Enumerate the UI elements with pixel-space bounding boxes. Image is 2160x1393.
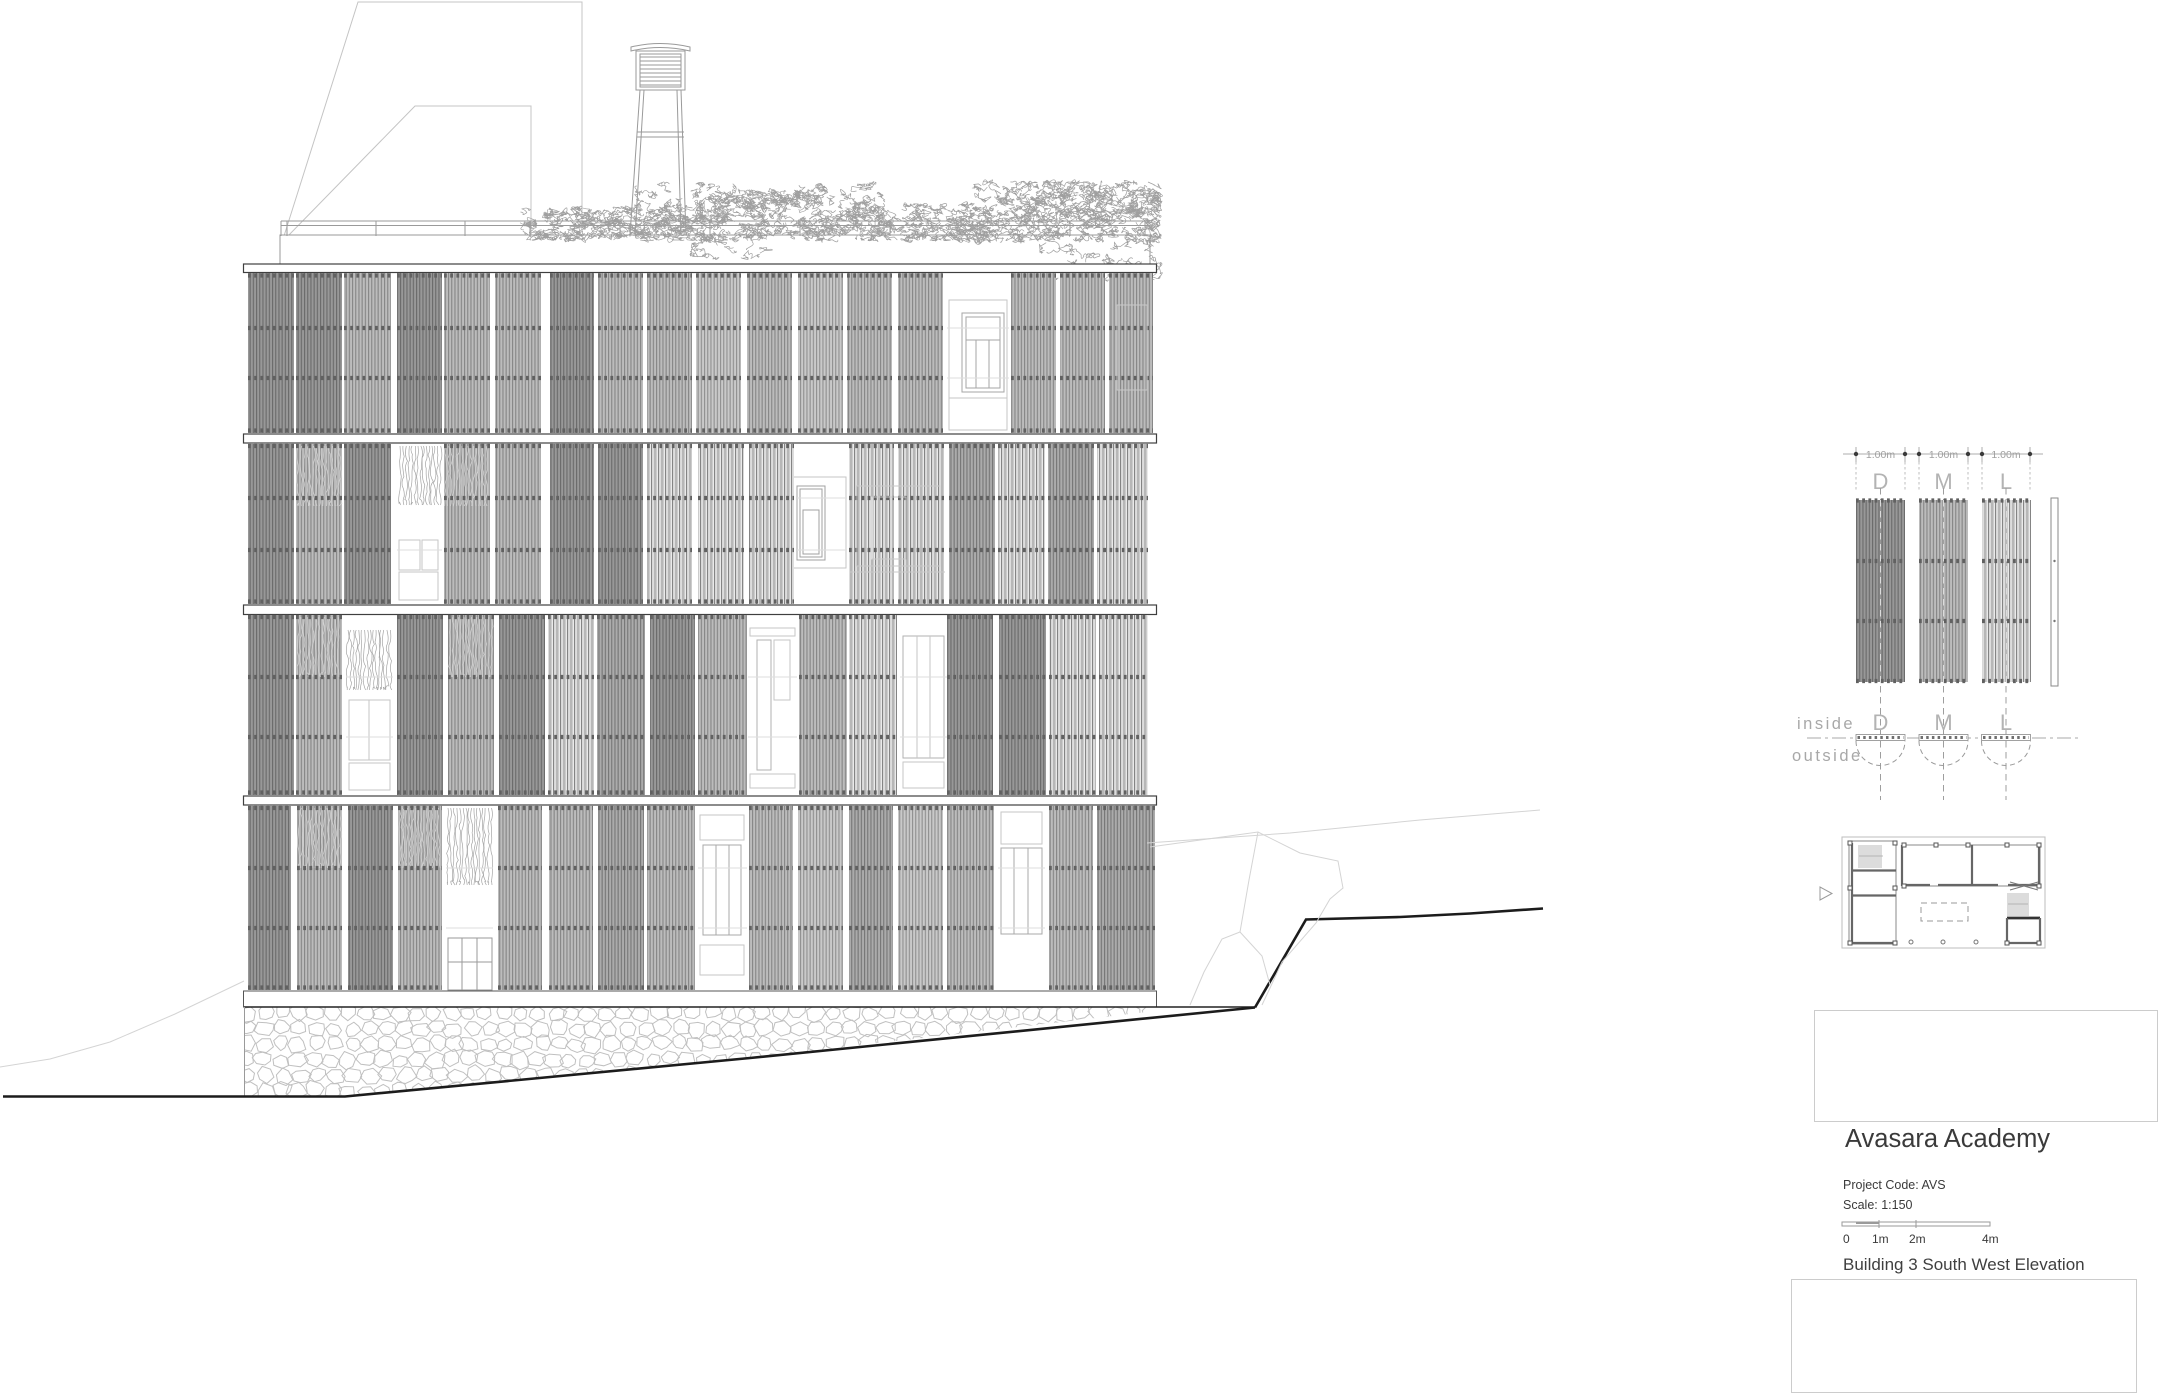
svg-text:M: M [1934, 710, 1952, 735]
svg-text:Building 3 South West Elevatio: Building 3 South West Elevation [1843, 1255, 2085, 1274]
svg-text:Scale: 1:150: Scale: 1:150 [1843, 1198, 1913, 1212]
svg-text:0: 0 [1843, 1232, 1850, 1246]
svg-text:1m: 1m [1872, 1232, 1889, 1246]
svg-text:1.00m: 1.00m [1929, 449, 1958, 461]
svg-text:D: D [1873, 710, 1889, 735]
svg-text:outside: outside [1792, 747, 1863, 765]
svg-text:4m: 4m [1982, 1232, 1999, 1246]
svg-text:Project Code: AVS: Project Code: AVS [1843, 1178, 1946, 1192]
svg-text:1.00m: 1.00m [1866, 449, 1895, 461]
svg-text:2m: 2m [1909, 1232, 1926, 1246]
svg-text:Avasara Academy: Avasara Academy [1845, 1125, 2050, 1153]
svg-text:1.00m: 1.00m [1991, 449, 2020, 461]
svg-text:inside: inside [1797, 715, 1855, 733]
svg-text:L: L [2000, 710, 2012, 735]
